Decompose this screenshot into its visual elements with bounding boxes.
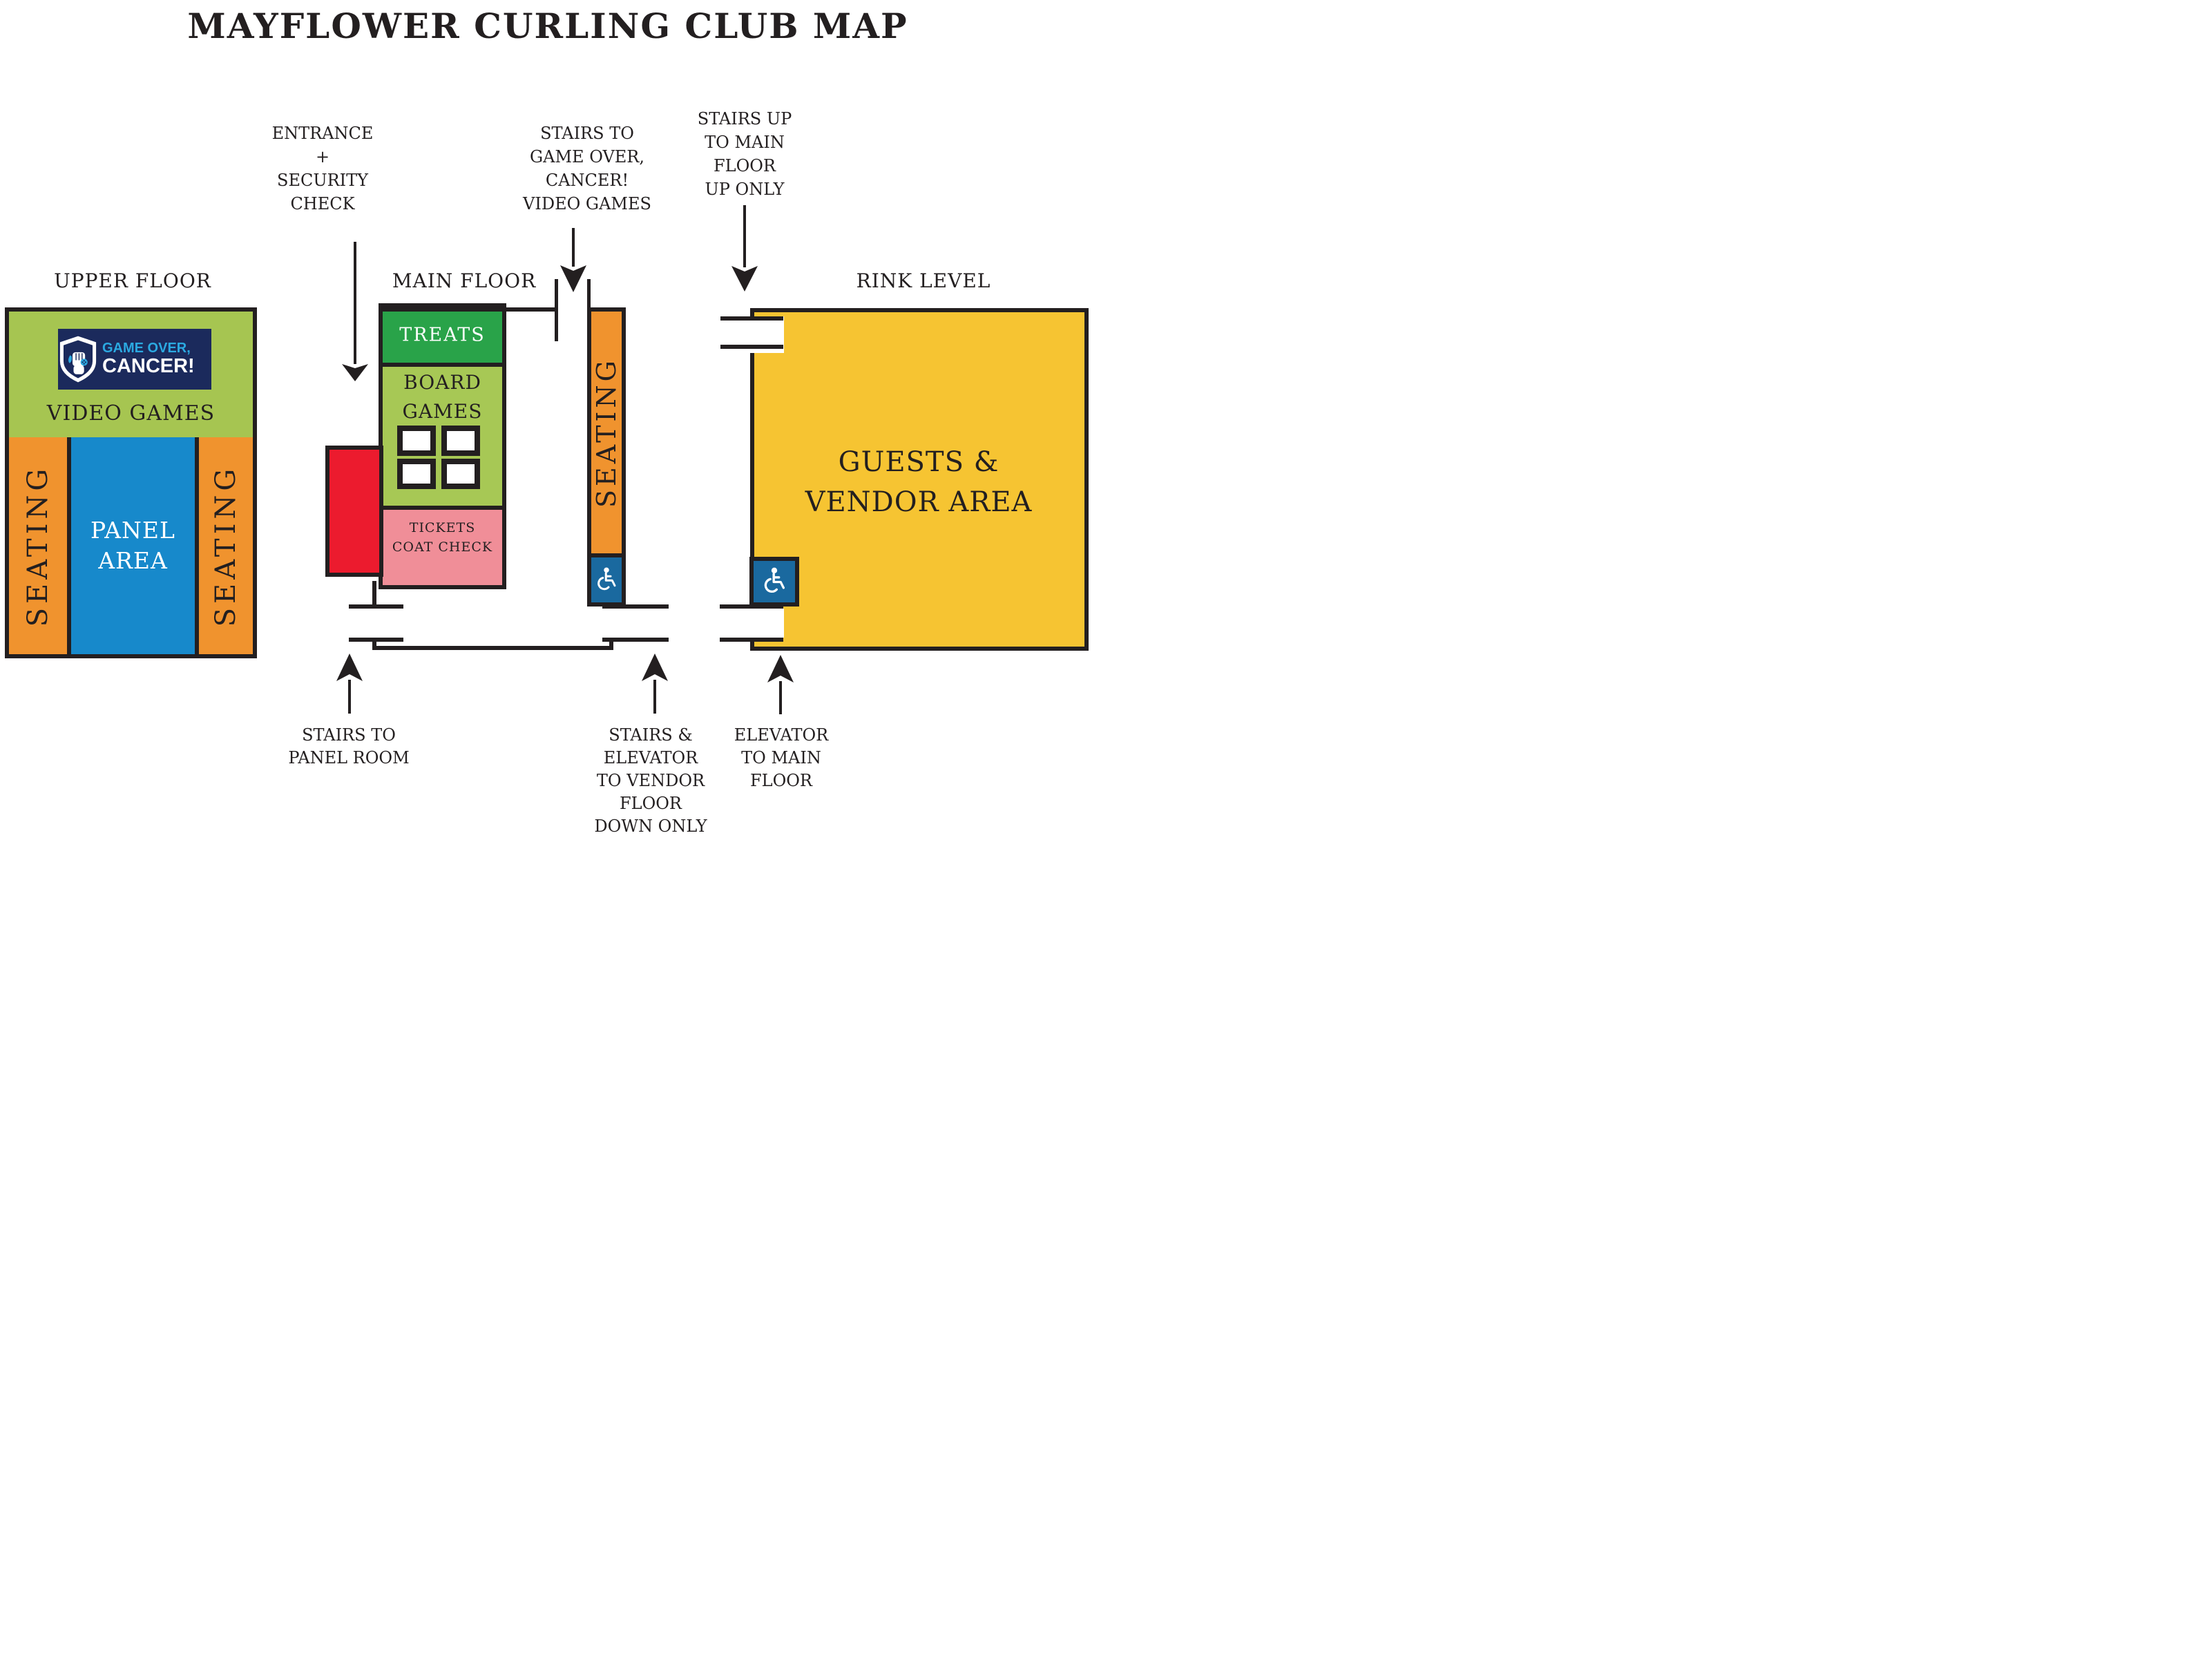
- club-map: MAYFLOWER CURLING CLUB MAP UPPER FLOOR M…: [0, 0, 1095, 840]
- seating-left-area: SEATING: [9, 437, 67, 654]
- wheelchair-icon: [760, 566, 788, 597]
- stairs-up-arrow: [731, 205, 758, 292]
- rink-level-label: RINK LEVEL: [857, 269, 991, 292]
- wall: [372, 642, 376, 650]
- main-accessible-area: [591, 557, 622, 602]
- game-over-cancer-logo: GAME OVER, CANCER!: [58, 329, 211, 390]
- video-games-label: VIDEO GAMES: [9, 401, 253, 426]
- game-table: [397, 426, 436, 456]
- upper-floor-bottom-row: SEATING PANEL AREA SEATING: [9, 437, 253, 654]
- panel-area: PANEL AREA: [71, 437, 195, 654]
- elevator-main-arrow: [767, 655, 794, 714]
- seating-left-label: SEATING: [22, 465, 54, 627]
- wall: [372, 581, 376, 607]
- stairs-vendor-label: STAIRS & ELEVATOR TO VENDOR FLOOR DOWN O…: [594, 724, 707, 838]
- game-table: [441, 426, 480, 456]
- board-games-label: BOARD GAMES: [383, 368, 502, 426]
- seating-right-area: SEATING: [199, 437, 253, 654]
- entrance-room: [325, 446, 383, 577]
- logo-text-line1: GAME OVER,: [102, 341, 195, 356]
- wheelchair-icon: [594, 566, 619, 594]
- stairs-panel-arrow: [336, 653, 363, 714]
- game-table: [397, 459, 436, 489]
- wall: [602, 638, 669, 642]
- stairs-vendor-arrow: [642, 653, 668, 714]
- tickets-coat-check-label: TICKETS COAT CHECK: [383, 518, 502, 557]
- entrance-label: ENTRANCE + SECURITY CHECK: [272, 122, 374, 216]
- logo-text-line2: CANCER!: [102, 356, 195, 376]
- board-games-area: BOARD GAMES: [383, 367, 502, 506]
- stairs-up-label: STAIRS UP TO MAIN FLOOR UP ONLY: [698, 107, 792, 201]
- main-seating-label: SEATING: [591, 357, 622, 508]
- panel-area-label: PANEL AREA: [71, 515, 195, 576]
- wall: [349, 604, 403, 609]
- treats-area: TREATS: [383, 307, 502, 363]
- main-floor-label: MAIN FLOOR: [392, 269, 536, 292]
- stairs-to-goc-label: STAIRS TO GAME OVER, CANCER! VIDEO GAMES: [523, 122, 651, 216]
- tickets-coat-check-area: TICKETS COAT CHECK: [383, 510, 502, 585]
- wall: [349, 638, 403, 642]
- game-table: [441, 459, 480, 489]
- main-seating-area: SEATING: [591, 312, 622, 553]
- guests-vendor-label: GUESTS & VENDOR AREA: [805, 442, 1033, 522]
- upper-floor-area: GAME OVER, CANCER! VIDEO GAMES SEATING P…: [5, 307, 257, 658]
- page-title: MAYFLOWER CURLING CLUB MAP: [187, 6, 908, 46]
- corridor-wall: [374, 646, 613, 650]
- stairs-goc-arrow: [560, 228, 586, 292]
- main-floor-room-stack: TREATS BOARD GAMES TICKETS COAT CHECK: [379, 303, 506, 589]
- stairs-panel-label: STAIRS TO PANEL ROOM: [288, 724, 409, 770]
- entrance-arrow: [342, 242, 368, 381]
- elevator-main-label: ELEVATOR TO MAIN FLOOR: [734, 724, 828, 792]
- door-jamb: [555, 279, 558, 341]
- seating-right-label: SEATING: [210, 465, 242, 627]
- upper-floor-label: UPPER FLOOR: [54, 269, 211, 292]
- treats-label: TREATS: [383, 325, 502, 346]
- main-floor-seating-bar: SEATING: [587, 307, 626, 607]
- shield-fist-icon: [58, 334, 98, 384]
- wall: [609, 638, 613, 650]
- rink-accessible-area: [749, 557, 799, 607]
